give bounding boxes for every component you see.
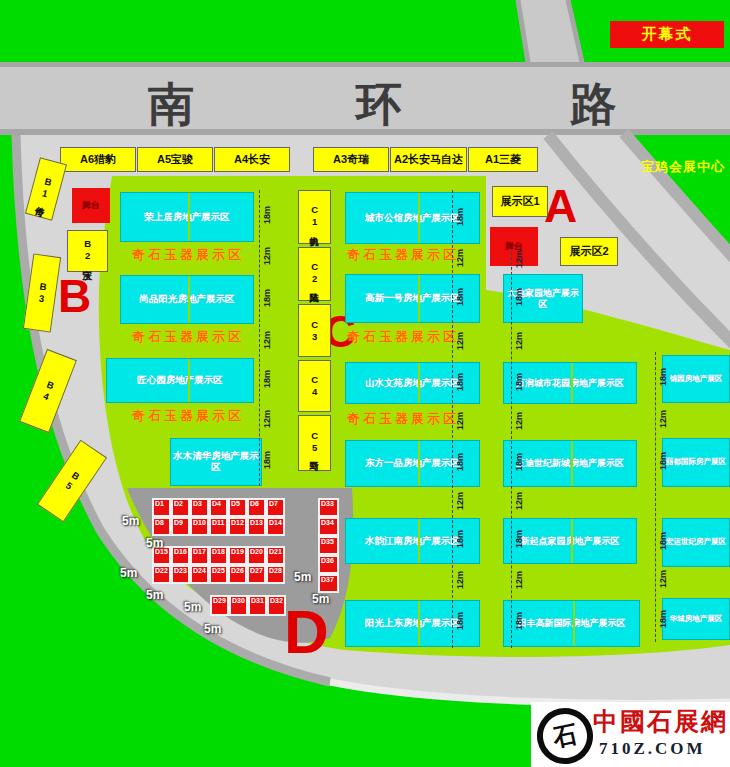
d-booth: D30 [229,595,248,616]
c-stall: C2陆风 [298,247,331,301]
booth-divider [571,519,573,563]
measure-label: 12m [514,565,524,595]
five-meter-label: 5m [312,592,329,606]
d-booth: D12 [228,517,247,536]
d-booth: D37 [318,574,339,593]
five-meter-label: 5m [146,536,163,550]
d-booth: D5 [228,498,247,517]
booth-label: 丽都国际房产展区 [666,458,726,467]
measure-label: 12m [658,404,668,434]
far-right-booth: 锦园房地产展区 [662,355,730,403]
d-booth: D13 [247,517,266,536]
far-right-booth: 丽都国际房产展区 [662,438,730,487]
stage-west: 舞台 [72,188,110,223]
c-stall: C4 [298,360,331,412]
logo-title: 中國石展網 [593,705,728,738]
measure-label: 18m [262,364,272,394]
display-zone-1: 展示区1 [492,186,548,217]
measure-label: 12m [455,565,465,595]
d-booth: D35 [318,536,339,555]
measure-label: 18m [658,362,668,392]
stone-seal-icon: 石 [532,703,598,767]
d-booth: D33 [318,498,339,517]
b-stall: B2宝沃 [67,230,108,272]
exhibition-map: 南 环 路 开幕式 宝鸡会展中心 A B C D 展示区1 展示区2 舞台 舞台… [0,0,730,767]
d-booth: D29 [210,595,229,616]
d-booth: D28 [266,565,285,584]
road-name-char: 环 [356,74,402,136]
measure-label: 18m [514,606,524,636]
five-meter-label: 5m [294,570,311,584]
jade-band-label: 奇石玉器展示区 [347,410,459,428]
left-booth: 荣上居房地产展示区 [120,192,254,242]
a-stall: A6猎豹 [60,147,136,172]
measure-label: 18m [262,200,272,230]
road-name-char: 路 [570,74,616,136]
d-booth: D4 [209,498,228,517]
measure-label: 18m [514,367,524,397]
booth-divider [188,276,190,323]
road-edge-top [0,62,730,67]
booth-divider [418,441,420,486]
booth-divider [573,601,575,646]
measure-label: 18m [658,446,668,476]
measure-label: 12m [262,325,272,355]
d-booth: D9 [171,517,190,536]
d-booth: D14 [266,517,285,536]
far-right-booth: 华城房地产展区 [662,598,730,640]
booth-label: 水木清华房地产展示区 [171,451,261,473]
booth-label: 荣上居房地产展示区 [144,212,230,223]
five-meter-label: 5m [122,514,139,528]
d-booth: D11 [209,517,228,536]
d-booth: D27 [247,565,266,584]
jade-band-label: 奇石玉器展示区 [118,246,258,264]
a-stall: A5宝骏 [137,147,213,172]
d-booth: D24 [190,565,209,584]
measure-label: 12m [262,241,272,271]
a-stall: A3奇瑞 [313,147,389,172]
booth-label: 尚品阳光房地产展示区 [140,294,235,305]
zone-letter-a: A [544,186,577,227]
booth-divider [571,441,573,486]
d-booth: D17 [190,546,209,565]
site-logo: 石 中國石展網 710Z.COM [531,702,730,767]
measure-label: 12m [514,406,524,436]
measure-label: 18m [658,604,668,634]
jade-band-label: 奇石玉器展示区 [347,246,459,264]
left-booth: 尚品阳光房地产展示区 [120,275,254,324]
d-booth: D16 [171,546,190,565]
measure-label: 12m [455,326,465,356]
booth-divider [418,275,420,322]
left-booth: 水木清华房地产展示区 [170,438,262,486]
measure-label: 12m [514,326,524,356]
booth-label: 高新一号房地产展示区 [365,293,460,304]
d-booth: D8 [152,517,171,536]
road-name-char: 南 [148,74,194,136]
d-booth: D3 [190,498,209,517]
booth-label: 新起点家园房地产展示区 [521,536,620,546]
five-meter-label: 5m [184,600,201,614]
measure-label: 18m [455,202,465,232]
measure-label: 18m [455,367,465,397]
a-stall: A4长安 [214,147,290,172]
measure-label: 18m [658,526,668,556]
measure-label: 18m [455,524,465,554]
jade-band-label: 奇石玉器展示区 [347,328,459,346]
booth-label: 阳光上东房地产展示区 [365,618,460,629]
jade-band-label: 奇石玉器展示区 [118,407,258,425]
d-booth: D25 [209,565,228,584]
measure-line [655,352,656,642]
booth-label: 东方一品房地产展示区 [365,458,460,469]
measure-line [259,190,260,486]
five-meter-label: 5m [204,622,221,636]
c-stall: C1力帆 [298,190,331,244]
display-zone-2: 展示区2 [560,237,618,266]
jade-band-label: 奇石玉器展示区 [118,328,258,346]
booth-label: 匠心园房地产展示区 [137,375,223,386]
measure-label: 12m [262,404,272,434]
measure-label: 12m [455,243,465,273]
logo-domain: 710Z.COM [599,739,706,759]
d-booth: D32 [267,595,286,616]
booth-label: 山水文苑房地产展示区 [365,378,460,389]
d-booth: D18 [209,546,228,565]
measure-label: 18m [455,606,465,636]
measure-label: 12m [514,486,524,516]
five-meter-label: 5m [120,566,137,580]
booth-label: 城市公馆房地产展示区 [365,213,460,224]
left-booth: 匠心园房地产展示区 [106,358,254,403]
measure-label: 12m [658,564,668,594]
measure-label: 18m [514,447,524,477]
d-booth: D6 [247,498,266,517]
measure-line [511,252,512,648]
a-stall: A1三菱 [468,147,538,172]
c-stall: C5野马 [298,415,331,471]
d-booth: D36 [318,555,339,574]
zone-letter-b: B [58,276,91,317]
booth-divider [418,601,420,646]
d-booth: D22 [152,565,171,584]
d-booth: D20 [247,546,266,565]
d-booth: D34 [318,517,339,536]
measure-label: 12m [455,486,465,516]
measure-label: 12m [514,244,524,274]
booth-label: 田丰高新国际房地产展示区 [518,618,626,628]
measure-label: 12m [455,406,465,436]
stone-glyph: 石 [550,718,580,754]
opening-ceremony-banner: 开幕式 [610,21,724,48]
booth-divider [418,519,420,563]
booth-divider [188,359,190,402]
booth-label: 锦园房地产展区 [670,375,723,384]
booth-divider [418,363,420,403]
measure-label: 18m [262,445,272,475]
far-right-booth: 宏运世纪房产展区 [662,518,730,567]
d-booth: D26 [228,565,247,584]
d-booth: D7 [266,498,285,517]
booth-label: 华城房地产展区 [670,615,723,624]
booth-divider [188,193,190,241]
measure-label: 18m [514,524,524,554]
measure-line [452,190,453,648]
d-booth: D31 [248,595,267,616]
measure-label: 18m [455,282,465,312]
booth-label: 宏运世纪房产展区 [666,538,726,547]
c-stall: C3 [298,304,331,357]
a-stall: A2长安马自达 [390,147,467,172]
five-meter-label: 5m [146,588,163,602]
booth-label: 三迪世纪新城房地产展示区 [516,458,624,468]
venue-center-label: 宝鸡会展中心 [641,158,725,176]
d-booth: D19 [228,546,247,565]
measure-label: 18m [455,447,465,477]
measure-label: 18m [262,283,272,313]
d-booth: D21 [266,546,285,565]
measure-label: 18m [514,282,524,312]
booth-divider [571,363,573,403]
booth-label: 万润城市花园房地产展示区 [516,378,624,388]
zone-letter-d: D [284,604,329,660]
booth-label: 水韵江南房地产展示区 [365,536,460,547]
d-booth: D23 [171,565,190,584]
d-booth: D1 [152,498,171,517]
booth-divider [418,193,420,243]
d-booth: D10 [190,517,209,536]
d-booth: D2 [171,498,190,517]
